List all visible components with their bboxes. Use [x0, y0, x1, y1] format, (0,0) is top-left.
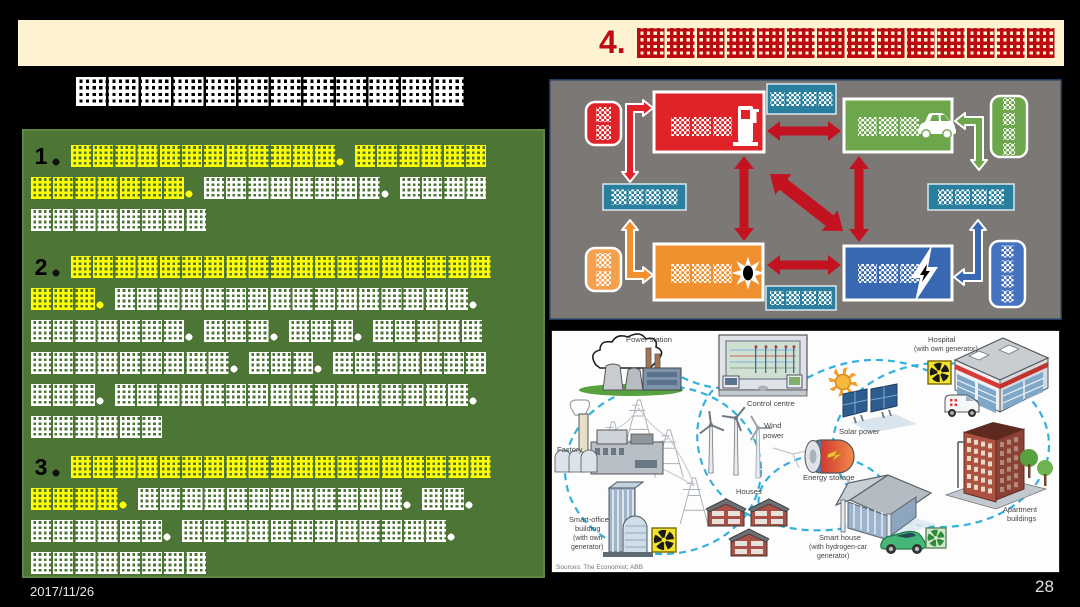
- svg-text:Hospital: Hospital: [928, 335, 956, 344]
- svg-text:Smart-office: Smart-office: [569, 515, 609, 524]
- svg-text:buildings: buildings: [1007, 514, 1036, 523]
- svg-text:generator): generator): [817, 553, 849, 560]
- svg-text:Houses: Houses: [736, 487, 762, 496]
- svg-text:Control centre: Control centre: [747, 399, 795, 408]
- svg-text:building: building: [575, 524, 600, 533]
- svg-text:Apartment: Apartment: [1003, 505, 1037, 514]
- svg-text:Power station: Power station: [626, 335, 672, 344]
- svg-text:Energy storage: Energy storage: [803, 473, 855, 482]
- svg-text:(with own: (with own: [573, 535, 603, 542]
- svg-text:generator): generator): [571, 544, 603, 551]
- svg-text:(with hydrogen-car: (with hydrogen-car: [809, 544, 868, 551]
- svg-text:Sources: The Economist; ABB: Sources: The Economist; ABB: [556, 564, 643, 571]
- svg-text:Solar power: Solar power: [839, 427, 880, 436]
- svg-text:Wind: Wind: [764, 421, 781, 430]
- svg-text:Smart house: Smart house: [819, 533, 861, 542]
- svg-text:power: power: [763, 431, 784, 440]
- svg-text:Factory: Factory: [557, 445, 583, 454]
- svg-text:(with own generator): (with own generator): [914, 346, 978, 353]
